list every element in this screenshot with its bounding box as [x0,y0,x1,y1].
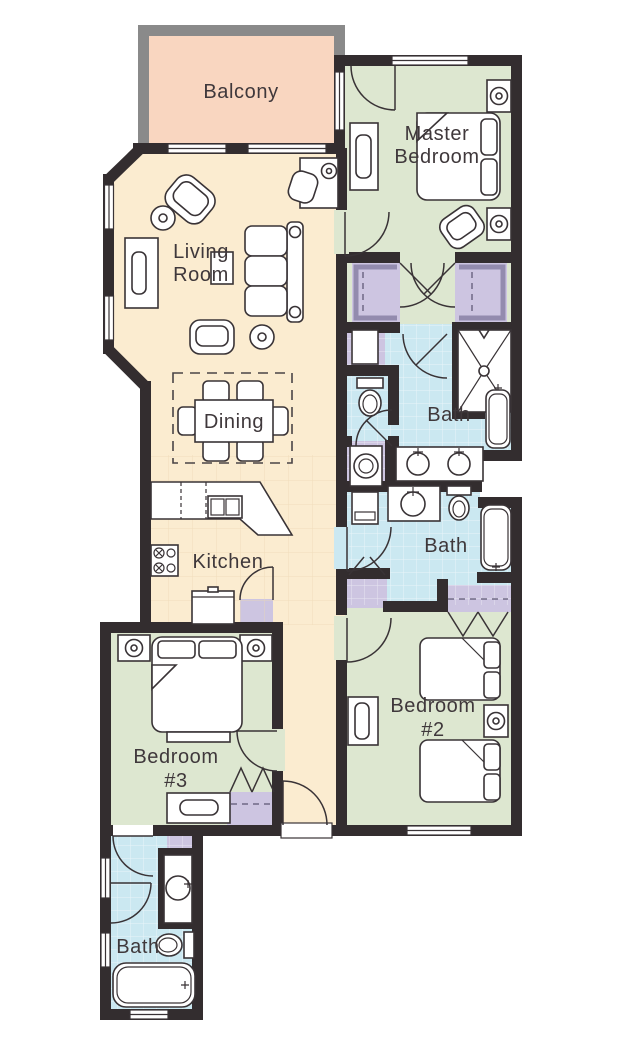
master-nightstand-bottom [487,208,511,240]
master-nightstand-top [487,80,511,112]
balcony-window-2 [248,144,326,153]
bath3-window-1 [101,858,110,898]
bay-window-top [105,185,114,229]
bedroom2-window [407,826,471,835]
toilet-1 [357,378,383,416]
bedroom2-dresser [348,697,378,745]
balcony-label: Balcony [203,81,278,103]
bath2-vanity [388,486,440,521]
bedroom2-bed-2 [420,740,500,802]
master-bath-label: Bath [427,404,471,426]
master-dresser [350,123,378,190]
linen-cabinet [352,330,378,364]
walkin-closet-right [455,263,507,322]
bedroom3-label-line1: Bedroom [133,746,218,768]
stove [151,545,178,576]
master-west-window [335,72,344,130]
toilet-3 [156,932,194,958]
dining-label: Dining [204,411,264,433]
kitchen-tile [151,455,336,625]
master-label-line1: Master [405,123,470,145]
bedroom2-nightstand [484,705,508,737]
bedroom3-nightstand-right [240,635,272,661]
living-floor-lamp-1 [151,206,175,230]
bedroom3-label-line2: #3 [164,770,187,792]
kitchen-label: Kitchen [193,551,264,573]
kitchen-sink [208,496,242,518]
bay-window-bottom [105,296,114,340]
toilet-2 [447,486,471,520]
tv-console [125,238,158,308]
floor-plan-page: Balcony Master Bedroom Living Room Dinin… [0,0,640,1057]
balcony-window-1 [168,144,226,153]
bath2-tub [481,505,511,571]
bath3-tub [113,963,195,1007]
bedroom2-label-line1: Bedroom [390,695,475,717]
floor-plan: Balcony Master Bedroom Living Room Dinin… [0,0,640,1057]
second-bath-label: Bath [424,535,468,557]
bedroom3-closet [227,792,277,825]
sofa [245,222,303,322]
living-chair [190,320,234,354]
bedroom2-label-line2: #2 [421,719,444,741]
bath2-cabinet [352,492,378,524]
bath3-vanity [164,855,192,923]
master-label-line2: Bedroom [394,146,479,168]
third-bath-label: Bath [116,936,160,958]
bedroom3-nightstand-left [118,635,150,661]
master-tub [486,384,510,448]
refrigerator [192,587,234,624]
living-label-line2: Room [173,264,229,286]
bedroom2-bed-1 [420,638,500,700]
exterior-notch [480,458,525,500]
washer [350,446,382,486]
living-label-line1: Living [173,241,229,263]
bath3-window-3 [130,1010,168,1019]
bedroom3-dresser [167,793,230,823]
living-floor-lamp-2 [250,325,274,349]
entry-threshold [281,823,332,838]
bath3-window-2 [101,933,110,967]
walkin-closet-left [352,263,400,322]
master-top-window [392,56,468,65]
double-vanity [396,447,483,481]
bedroom3-bed [152,637,242,742]
